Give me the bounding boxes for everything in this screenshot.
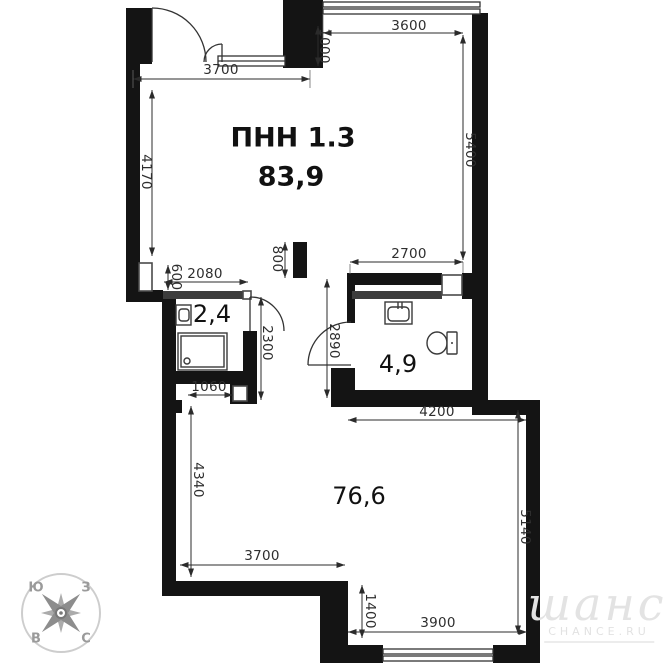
- toilet-icon: [427, 332, 457, 354]
- dim-1000: 1000: [316, 28, 332, 64]
- dim-3900: 3900: [420, 615, 456, 631]
- compass-label-east: В: [31, 632, 41, 647]
- dim-1060: 1060: [191, 379, 227, 395]
- floorplan-canvas: ПНН 1.3 83,9 2,4 4,9 76,6 3700 1000 3600…: [0, 0, 670, 670]
- compass-label-south: Ю: [28, 581, 43, 596]
- watermark-script: шанс: [527, 577, 666, 631]
- room-area-bathroom: 4,9: [379, 350, 417, 378]
- unit-label: ПНН 1.3: [230, 123, 355, 154]
- storage-shaft: [233, 386, 247, 401]
- dim-1400: 1400: [362, 593, 378, 629]
- dim-2890: 2890: [326, 323, 342, 359]
- dim-5140: 5140: [517, 509, 533, 545]
- window-bottom: [383, 649, 493, 661]
- entrance-door: [152, 8, 222, 62]
- wall-niche: [139, 263, 152, 291]
- window-top: [323, 2, 480, 14]
- dim-4200: 4200: [419, 404, 455, 420]
- dim-4340: 4340: [190, 462, 206, 498]
- dim-3600: 3600: [391, 18, 427, 34]
- dim-3700-top: 3700: [203, 62, 239, 78]
- unit-total-area: 83,9: [258, 162, 325, 193]
- bathroom-shaft: [442, 275, 462, 295]
- shower-tray-icon: [178, 333, 227, 370]
- dim-2700: 2700: [391, 246, 427, 262]
- compass-label-west: З: [81, 581, 90, 596]
- room-area-main: 76,6: [332, 482, 385, 510]
- dim-800: 800: [269, 246, 285, 273]
- partitions-layer: [163, 291, 442, 299]
- room-area-storage: 2,4: [193, 300, 231, 328]
- dim-3700-bottom: 3700: [244, 548, 280, 564]
- dim-600: 600: [168, 264, 184, 291]
- dim-4170: 4170: [138, 154, 154, 190]
- small-sink-icon: [176, 305, 191, 325]
- dim-5400: 5400: [462, 132, 478, 168]
- compass-label-north: С: [81, 632, 91, 647]
- dim-2080: 2080: [187, 266, 223, 282]
- sink-icon: [385, 302, 412, 324]
- dim-2300: 2300: [259, 325, 275, 361]
- watermark-caption: CHANCE.RU: [544, 625, 654, 643]
